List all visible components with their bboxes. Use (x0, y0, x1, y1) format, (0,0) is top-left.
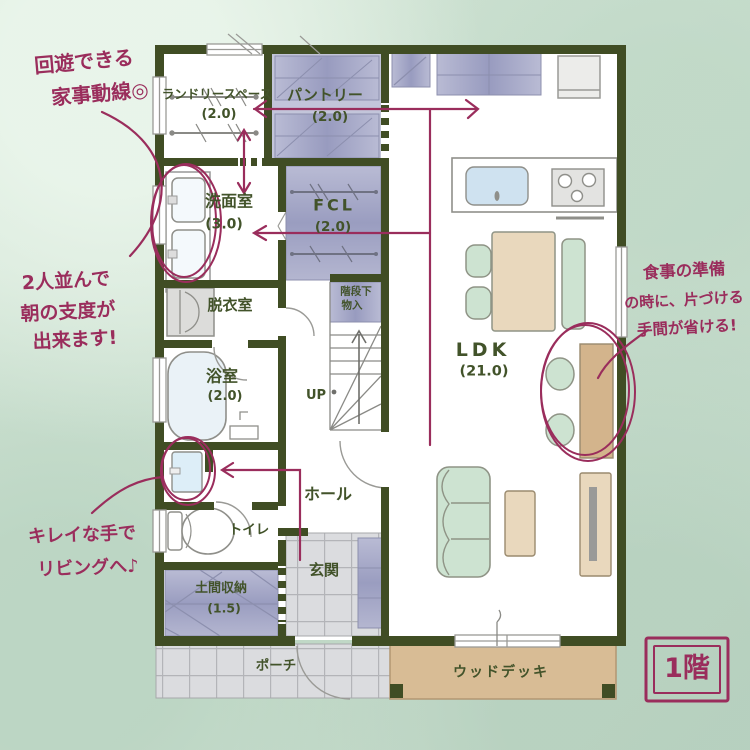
pantry-area: (2.0) (312, 110, 348, 124)
floor-plan-drawing (0, 0, 750, 750)
hand-wash-sink (170, 452, 202, 492)
under-stair-storage-label: 階段下 (340, 286, 372, 297)
ldk-area: (21.0) (459, 364, 508, 379)
washroom-label: 洗面室 (205, 194, 253, 211)
toilet-label: トイレ (229, 523, 270, 537)
dining-bench (562, 239, 585, 329)
entrance-label: 玄関 (309, 563, 339, 579)
hall-label: ホール (304, 487, 352, 504)
kitchen-cupboard (437, 53, 541, 95)
family-closet-area: (2.0) (315, 220, 351, 234)
under-stair-storage-label2: 物入 (342, 300, 363, 311)
floor-plan-canvas: ランドリースペース (2.0) パントリー (2.0) 洗面室 (3.0) FC… (0, 0, 750, 750)
bathroom-area: (2.0) (208, 390, 243, 404)
pantry-shelves (272, 54, 381, 158)
wood-deck-label: ウッドデッキ (453, 666, 549, 681)
porch-label: ポーチ (256, 659, 297, 673)
laundry-room-area: (2.0) (202, 108, 237, 122)
stairs-up-label: UP (306, 389, 326, 403)
tv-screen (589, 487, 597, 561)
stove (552, 169, 604, 206)
washroom-area: (3.0) (205, 218, 243, 233)
stool (546, 358, 574, 390)
dining-table (492, 232, 555, 331)
toilet-bowl (168, 508, 234, 554)
pantry-label: パントリー (287, 88, 363, 104)
annotation-clean-hands-2: リビングへ♪ (37, 558, 139, 580)
family-closet-label: FCL (313, 198, 355, 215)
ldk-label: LDK (456, 341, 511, 361)
annotation-clean-hands-1: キレイな手で (28, 525, 137, 548)
refrigerator (558, 56, 600, 98)
floor-badge: 1階 (664, 655, 710, 683)
coffee-table (505, 491, 535, 556)
bath-faucet (230, 426, 258, 439)
laundry-room-label: ランドリースペース (162, 87, 272, 100)
dressing-room-label: 脱衣室 (207, 298, 252, 314)
tv-board (580, 473, 611, 576)
kitchen-counter (452, 158, 617, 218)
dining-chair (466, 287, 491, 319)
annotation-meal-prep-1: 食事の準備 (642, 260, 725, 282)
bathroom-label: 浴室 (206, 369, 238, 386)
dining-chair (466, 245, 491, 277)
doma-storage-area: (1.5) (207, 601, 241, 614)
doma-storage-label: 土間収納 (195, 582, 247, 596)
kitchen-tall-cabinet (392, 53, 430, 87)
flow-curve-clean-hands (92, 477, 163, 513)
sofa (437, 467, 490, 577)
